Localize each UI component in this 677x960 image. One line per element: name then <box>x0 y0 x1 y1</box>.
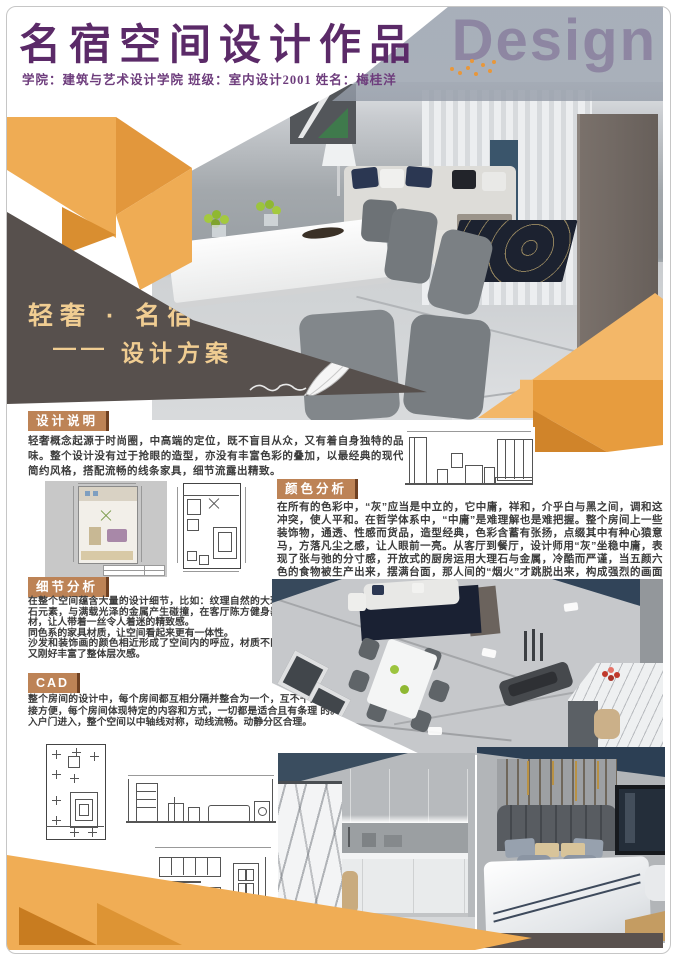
tagline-text: 设计方案 <box>121 334 233 368</box>
poster-title: 名宿空间设计作品 <box>19 11 419 72</box>
floorplan-line <box>175 479 249 575</box>
poster-card: Design 名宿空间设计作品 学院：建筑与艺术设计学院 班级：室内设计2001… <box>6 6 671 954</box>
bedroom-render <box>477 747 665 943</box>
flowers <box>254 200 288 226</box>
design-note-body: 轻奢概念起源于时尚圈，中高端的定位，既不盲目从众，又有着自身独特的品味。整个设计… <box>28 434 404 479</box>
bedroom-window <box>615 785 665 855</box>
elevation-drawing-a <box>124 769 278 829</box>
color-analysis-body: 在所有的色彩中，“灰”应当是中立的，它中庸，祥和，介乎白与黑之间，调和这冲突，使… <box>277 501 663 592</box>
section-heading-design-note: 设计说明 <box>28 411 109 431</box>
poster-subtitle: 学院：建筑与艺术设计学院 班级：室内设计2001 姓名：梅桂洋 <box>22 69 397 88</box>
ceiling-plan-drawing <box>40 740 110 846</box>
flowers <box>204 210 238 236</box>
cad-body: 整个房间的设计中，每个房间都互相分隔并整合为一个，互不干扰，但连接方便，每个房间… <box>28 694 350 729</box>
detail-analysis-body: 在整个空间蕴含大量的设计细节，比如：纹理自然的大理石元素，与满载光泽的金属产生碰… <box>28 597 280 661</box>
section-heading-color-analysis: 颜色分析 <box>277 479 358 499</box>
flower-vase <box>602 667 628 685</box>
floorplan-colored <box>45 481 167 577</box>
section-heading-cad: CAD <box>28 673 80 693</box>
tagline-line2: —— 设计方案 <box>53 334 233 368</box>
poster-canvas: Design 名宿空间设计作品 学院：建筑与艺术设计学院 班级：室内设计2001… <box>0 0 677 960</box>
section-heading-detail-analysis: 细节分析 <box>28 577 109 597</box>
dining-room-render <box>272 579 663 755</box>
tagline-dash: —— <box>53 334 109 368</box>
dot-cluster <box>450 57 496 79</box>
detail-analysis-paragraph: 沙发和装饰画的颜色相近形成了空间内的呼应，材质不同又刚好丰富了整体层次感。 <box>28 639 280 660</box>
floor-lamp <box>322 144 356 166</box>
detail-analysis-paragraph: 在整个空间蕴含大量的设计细节，比如：纹理自然的大理石元素，与满载光泽的金属产生碰… <box>28 597 280 629</box>
elevation-drawing-top <box>403 427 535 489</box>
